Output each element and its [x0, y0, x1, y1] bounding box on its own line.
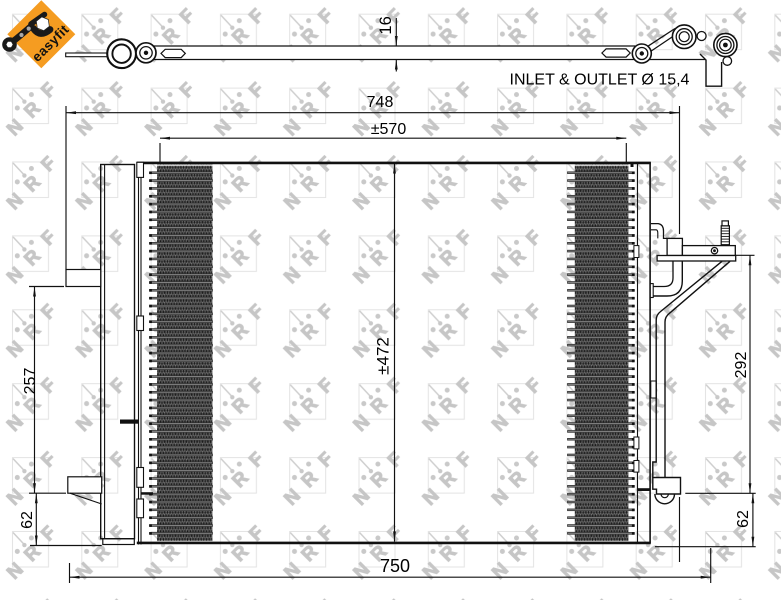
svg-text:748: 748 [367, 94, 394, 111]
svg-text:750: 750 [380, 556, 410, 576]
svg-text:±472: ±472 [374, 337, 393, 375]
svg-text:16: 16 [377, 16, 395, 34]
svg-text:257: 257 [22, 368, 39, 395]
svg-text:62: 62 [735, 510, 752, 528]
svg-text:INLET & OUTLET Ø 15,4: INLET & OUTLET Ø 15,4 [510, 72, 690, 89]
svg-text:±570: ±570 [371, 121, 407, 138]
svg-text:62: 62 [19, 511, 36, 529]
svg-text:292: 292 [733, 352, 750, 379]
